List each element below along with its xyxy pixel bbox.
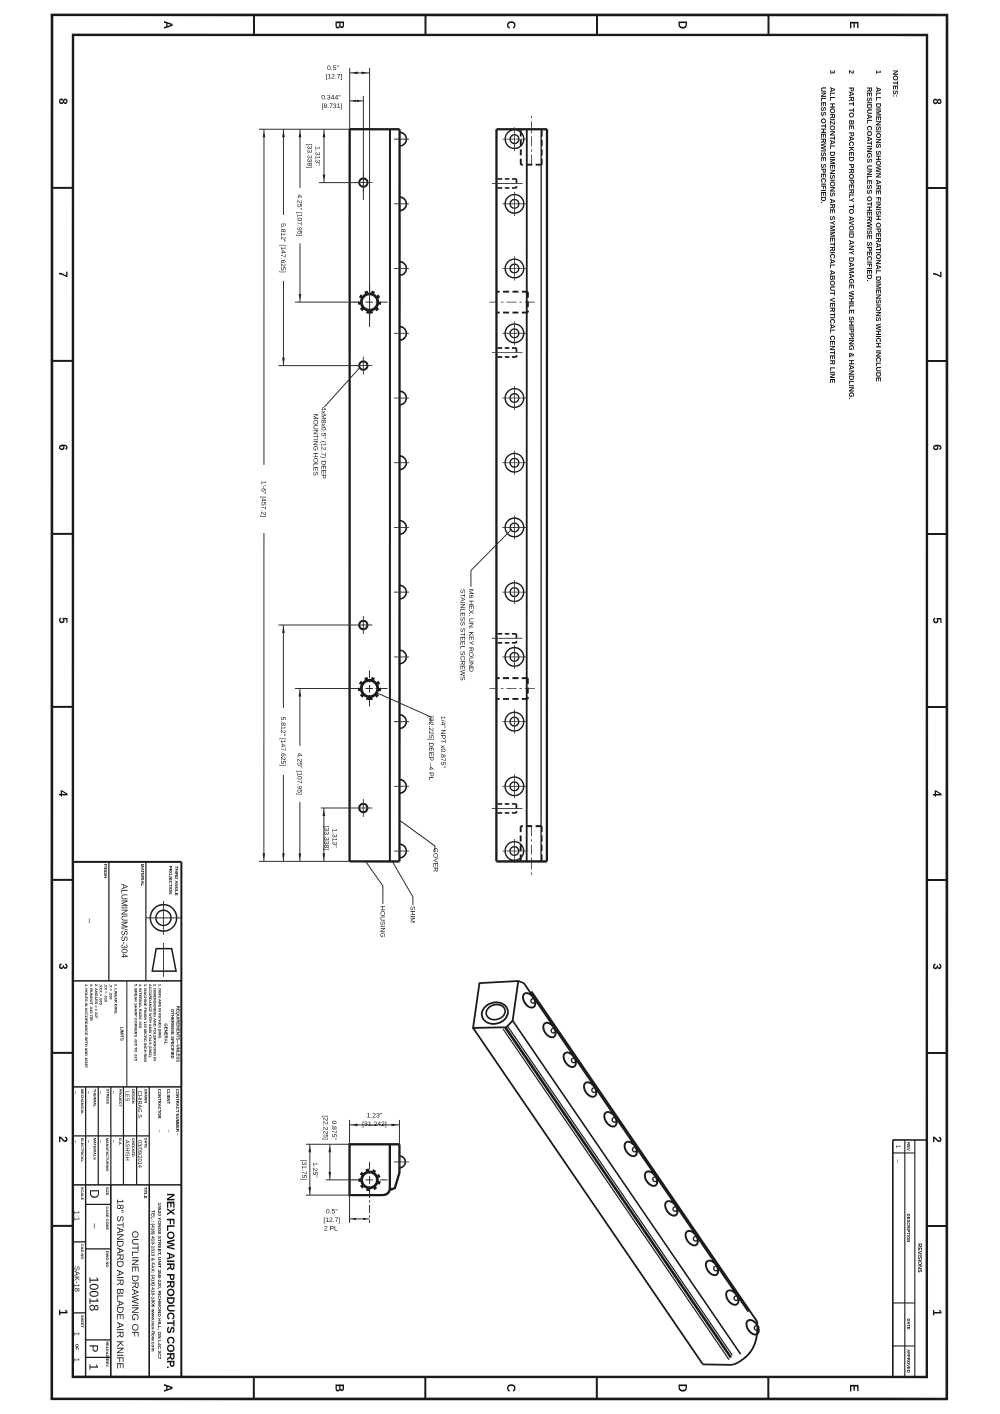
svg-text:DESCRIPTION: DESCRIPTION: [906, 1214, 911, 1243]
svg-text:5: 5: [930, 617, 942, 624]
svg-text:4.25" [107.95]: 4.25" [107.95]: [295, 753, 302, 795]
svg-text:PROJECT: PROJECT: [118, 1089, 122, 1108]
svg-text:3. MACHINE FINISH 125 MICRO IN: 3. MACHINE FINISH 125 MICRO INCH RMS: [143, 984, 148, 1063]
svg-text:[33.338]: [33.338]: [305, 144, 312, 169]
svg-text:CAD NO: CAD NO: [80, 1244, 85, 1259]
svg-text:TEL.: (416) 410-1313 & FAX: (4: TEL.: (416) 410-1313 & FAX: (416) 410-18…: [149, 1210, 155, 1351]
svg-text:2. DIMENSIONING AND TOLERANCIN: 2. DIMENSIONING AND TOLERANCING IN: [153, 984, 158, 1061]
svg-text:ELECTRICAL: ELECTRICAL: [80, 1138, 84, 1163]
svg-text:1.25": 1.25": [311, 1162, 318, 1178]
svg-text:REV: REV: [105, 1359, 110, 1367]
svg-text:E: E: [847, 1384, 859, 1392]
svg-text:4xM8x0.5" (12.7) DEEP: 4xM8x0.5" (12.7) DEEP: [319, 407, 326, 479]
svg-text:NEX FLOW AIR PRODUCTS CORP.: NEX FLOW AIR PRODUCTS CORP.: [164, 1193, 176, 1369]
svg-text:GENERAL: GENERAL: [163, 1023, 168, 1044]
svg-text:5.812" [147.625]: 5.812" [147.625]: [279, 223, 286, 273]
svg-text:LIMITS: LIMITS: [119, 1027, 124, 1041]
svg-text:10520 YONGE STREET, UNIT 35B-2: 10520 YONGE STREET, UNIT 35B-220, RICHMO…: [156, 1203, 162, 1360]
svg-text:CLIENT: CLIENT: [166, 1089, 171, 1105]
svg-text:COVER: COVER: [431, 848, 438, 872]
svg-text:[12.7]: [12.7]: [323, 1217, 340, 1224]
svg-text:STAINLESS STEEL SCREWS: STAINLESS STEEL SCREWS: [458, 589, 465, 681]
svg-text:–: –: [157, 1130, 162, 1133]
svg-text:MATERIALS: MATERIALS: [93, 1138, 97, 1160]
svg-text:6: 6: [930, 444, 942, 450]
svg-text:B: B: [332, 21, 344, 29]
svg-text:0.344": 0.344": [321, 94, 341, 101]
svg-text:3. RUNOUT .010 TIR: 3. RUNOUT .010 TIR: [89, 984, 94, 1021]
svg-text:STRESS: STRESS: [105, 1089, 109, 1105]
svg-text:–: –: [90, 1223, 100, 1228]
svg-text:1: 1: [894, 1145, 900, 1149]
svg-text:DESIGN: DESIGN: [131, 1089, 135, 1104]
svg-text:CONTRACT NUMBER –: CONTRACT NUMBER –: [175, 1089, 180, 1136]
svg-text:UNLESS OTHERWISE SPECIFIED.: UNLESS OTHERWISE SPECIFIED.: [819, 87, 828, 203]
svg-text:6: 6: [56, 444, 68, 450]
svg-text:2 PL: 2 PL: [324, 1225, 338, 1232]
svg-text:PART TO BE PACKED PROPERLY TO: PART TO BE PACKED PROPERLY TO AVOID ANY …: [847, 87, 856, 400]
svg-text:1'-6" [457.2]: 1'-6" [457.2]: [259, 481, 266, 517]
svg-text:–: –: [85, 919, 94, 924]
svg-text:.XXX = .005: .XXX = .005: [99, 984, 104, 1006]
svg-text:3: 3: [930, 963, 942, 969]
svg-text:1: 1: [72, 1358, 81, 1362]
svg-text:[33.338]: [33.338]: [322, 826, 329, 851]
svg-text:2. ANGLES = ± 1/2°: 2. ANGLES = ± 1/2°: [94, 984, 99, 1019]
svg-text:1: 1: [86, 1364, 100, 1371]
svg-text:ALL DIMENSIONS SHOWN ARE FINIS: ALL DIMENSIONS SHOWN ARE FINISH OPERATIO…: [874, 87, 883, 382]
svg-text:REQUIREMENTS—UNLESS: REQUIREMENTS—UNLESS: [175, 1006, 180, 1062]
svg-text:1: 1: [874, 70, 883, 74]
svg-text:LES: LES: [123, 1091, 129, 1102]
svg-text:P: P: [86, 1344, 100, 1352]
svg-text:2: 2: [930, 1136, 942, 1142]
svg-text:DRAWN: DRAWN: [144, 1089, 148, 1104]
svg-text:OUTLINE DRAWING OF: OUTLINE DRAWING OF: [129, 1231, 140, 1337]
svg-text:MOUNTING HOLES: MOUNTING HOLES: [311, 414, 318, 476]
svg-text:1. LINEAR DIMS.: 1. LINEAR DIMS.: [113, 984, 118, 1015]
svg-text:D: D: [675, 21, 687, 29]
svg-text:1: 1: [930, 1309, 942, 1316]
svg-text:C: C: [504, 1384, 516, 1392]
svg-text:4: 4: [56, 790, 68, 797]
svg-text:4. HOLES IN ACCORDANCE WITH AN: 4. HOLES IN ACCORDANCE WITH AND 10587: [84, 984, 89, 1068]
svg-text:[31.75]: [31.75]: [300, 1160, 307, 1181]
svg-text:8: 8: [930, 98, 942, 105]
svg-text:7: 7: [930, 271, 942, 277]
svg-text:C: C: [504, 21, 516, 29]
svg-text:.XX = .010: .XX = .010: [104, 984, 109, 1002]
svg-text:1. DIMS ARE IN INCHES (MM): 1. DIMS ARE IN INCHES (MM): [157, 984, 162, 1039]
svg-text:7: 7: [56, 271, 68, 277]
svg-text:REV: REV: [906, 1142, 911, 1151]
svg-text:SIZE: SIZE: [105, 1187, 110, 1196]
svg-text:THIRD ANGLE: THIRD ANGLE: [174, 866, 179, 896]
svg-text:G.A.: G.A.: [118, 1138, 122, 1146]
svg-text:A: A: [161, 1384, 173, 1392]
svg-text:–: –: [166, 1130, 171, 1133]
svg-text:1: 1: [72, 1332, 81, 1336]
svg-text:REVISIONS: REVISIONS: [916, 1243, 922, 1273]
svg-text:4.25" [107.95]: 4.25" [107.95]: [295, 194, 302, 236]
svg-text:MATERIAL: MATERIAL: [140, 864, 145, 887]
svg-text:1.313": 1.313": [313, 146, 320, 166]
svg-text:MECHANICAL: MECHANICAL: [80, 1089, 84, 1115]
svg-text:1:1: 1:1: [72, 1211, 81, 1221]
svg-text:[22.225] DEEP –4 PL: [22.225] DEEP –4 PL: [427, 716, 434, 781]
svg-text:ASHISH: ASHISH: [123, 1140, 129, 1161]
svg-text:B: B: [332, 1384, 344, 1392]
svg-text:MANUFACTURING: MANUFACTURING: [105, 1138, 109, 1172]
svg-text:SHEET: SHEET: [80, 1315, 85, 1329]
svg-text:SHIM: SHIM: [408, 906, 415, 923]
svg-text:CHIRAG.S: CHIRAG.S: [136, 1091, 142, 1118]
svg-text:OF: OF: [74, 1344, 79, 1351]
svg-text:–: –: [894, 1159, 900, 1163]
svg-text:DWG NO: DWG NO: [105, 1251, 110, 1267]
svg-text:[8.731]: [8.731]: [322, 103, 343, 110]
svg-text:4. INTERNAL RADII .015: 4. INTERNAL RADII .015: [138, 984, 143, 1029]
svg-text:2: 2: [56, 1136, 68, 1142]
svg-text:D: D: [675, 1384, 687, 1392]
svg-text:HOUSING: HOUSING: [378, 906, 385, 938]
svg-text:ACCORDANCE WITH ANSI Y14.5 (19: ACCORDANCE WITH ANSI Y14.5 (1982): [148, 984, 153, 1058]
svg-text:1.313": 1.313": [330, 828, 337, 848]
svg-text:10018: 10018: [86, 1276, 100, 1311]
svg-text:0.5": 0.5": [326, 1208, 338, 1215]
svg-text:APPROVED: APPROVED: [906, 1349, 911, 1373]
svg-text:NOTES:: NOTES:: [891, 70, 900, 97]
svg-text:1/4" NPT x0.875": 1/4" NPT x0.875": [439, 716, 446, 769]
svg-text:DATE: DATE: [144, 1138, 148, 1149]
svg-text:2: 2: [847, 70, 856, 74]
svg-text:0.875": 0.875": [330, 1120, 337, 1140]
svg-text:4: 4: [930, 790, 942, 797]
svg-text:0.5": 0.5": [327, 65, 339, 72]
svg-text:[22.225]: [22.225]: [321, 1115, 328, 1140]
svg-text:CHECKED: CHECKED: [131, 1138, 135, 1157]
svg-text:RESIDUAL COATINGS UNLESS OTHER: RESIDUAL COATINGS UNLESS OTHERWISE SPECI…: [865, 87, 874, 281]
svg-text:[31.242]: [31.242]: [362, 1121, 387, 1128]
svg-text:CAGE CODE: CAGE CODE: [105, 1206, 110, 1230]
svg-text:THERMAL: THERMAL: [93, 1089, 97, 1108]
svg-text:CONTRACTOR: CONTRACTOR: [157, 1089, 162, 1119]
svg-text:PROJECTION: PROJECTION: [168, 866, 173, 895]
svg-text:5: 5: [56, 617, 68, 624]
svg-text:OTHERWISE SPECIFIED: OTHERWISE SPECIFIED: [170, 1009, 175, 1059]
svg-text:M6 HEX. UN. KEY ROUND: M6 HEX. UN. KEY ROUND: [467, 589, 474, 672]
svg-text:RELEASE: RELEASE: [105, 1341, 110, 1360]
svg-text:3: 3: [828, 70, 837, 74]
svg-text:FINISH: FINISH: [103, 864, 108, 878]
svg-text:1.23": 1.23": [367, 1112, 383, 1119]
svg-text:A: A: [161, 21, 173, 29]
svg-text:1: 1: [56, 1309, 68, 1316]
svg-text:.X = .020: .X = .020: [108, 984, 113, 1000]
svg-text:5.812" [147.625]: 5.812" [147.625]: [279, 717, 286, 767]
svg-text:[12.7]: [12.7]: [325, 73, 342, 80]
svg-text:SAK-18: SAK-18: [72, 1266, 81, 1292]
svg-text:8: 8: [56, 98, 68, 105]
svg-text:03/09/2014: 03/09/2014: [136, 1140, 142, 1168]
svg-text:SCALE: SCALE: [80, 1187, 85, 1201]
svg-text:5. BREAK SHARP CORNERS .005 TO: 5. BREAK SHARP CORNERS .005 TO .015: [133, 984, 138, 1062]
svg-text:3: 3: [56, 963, 68, 969]
svg-text:DATE: DATE: [906, 1318, 911, 1329]
svg-text:ALL HORIZONTAL DIMENSIONS ARE: ALL HORIZONTAL DIMENSIONS ARE SYMMETRICA…: [828, 87, 837, 383]
svg-text:D: D: [87, 1189, 102, 1198]
svg-text:TITLE: TITLE: [143, 1187, 148, 1199]
svg-text:E: E: [847, 21, 859, 29]
svg-text:ALUMINUM/SS-304: ALUMINUM/SS-304: [119, 884, 129, 959]
svg-text:18" STANDARD AIR BLADE AIR KNI: 18" STANDARD AIR BLADE AIR KNIFE: [114, 1199, 125, 1369]
